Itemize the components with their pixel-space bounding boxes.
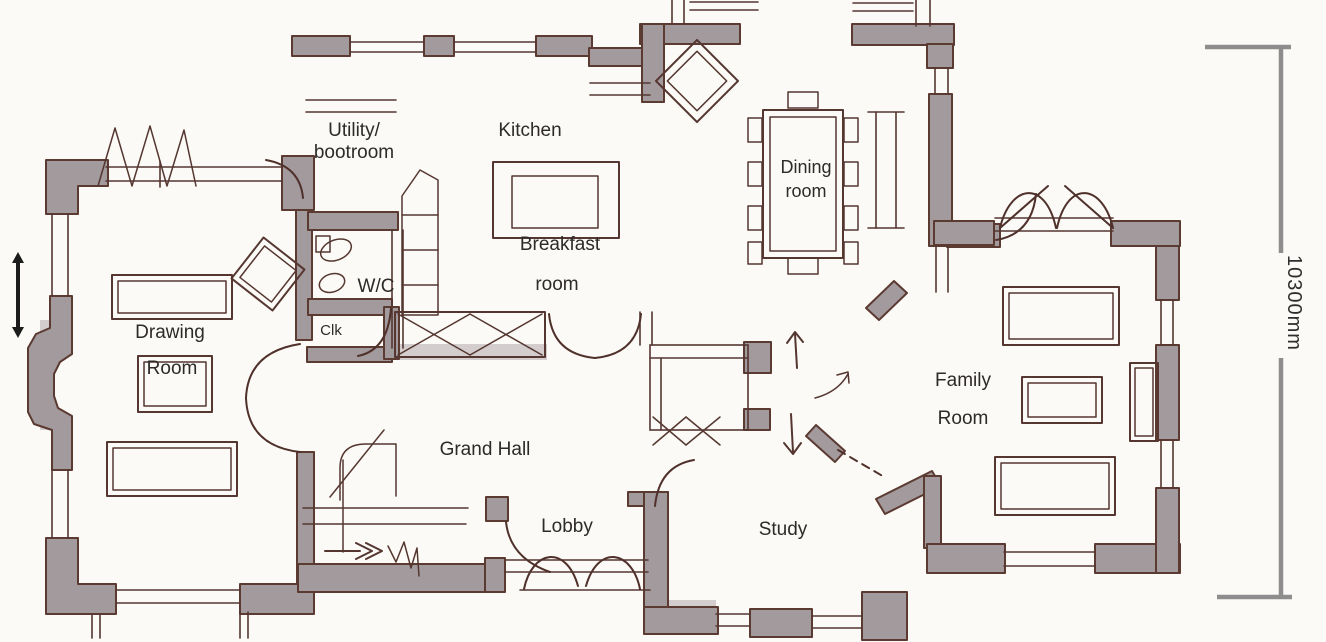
down-arrow (784, 414, 801, 454)
wall-segment (282, 156, 314, 210)
scale-tick (12, 252, 24, 338)
family-table (1022, 377, 1102, 423)
armchair (232, 238, 305, 311)
wall-segment (46, 538, 116, 614)
wall-segment (806, 425, 845, 462)
room-label-family-line1: Family (935, 370, 991, 391)
dimension-line: 10300mm (1205, 47, 1305, 597)
wall-segment (424, 36, 454, 56)
dimension-label: 10300mm (1283, 255, 1305, 351)
drawing-double-door-arc (246, 344, 300, 398)
drawing-double-door-arc (246, 398, 300, 452)
floor-plan-canvas: 10300mm Utility/ bootroom Kitchen Breakf… (0, 0, 1326, 642)
wall-segment (866, 281, 907, 320)
wall-segment (927, 44, 953, 68)
wall-segment (308, 212, 398, 230)
wall-segment (307, 347, 392, 362)
kitchen-unit (402, 170, 438, 315)
room-label-utility-line1: Utility/ (328, 120, 380, 141)
room-label-dining-line1: Dining (780, 157, 831, 177)
room-label-drawing-line2: Room (147, 358, 198, 379)
wall-segment (308, 299, 392, 315)
family-french-door-arc (1000, 193, 1056, 228)
wall-segment (292, 36, 350, 56)
curved-arrow (815, 372, 849, 398)
wall-segment (750, 609, 812, 637)
wall-segment (1156, 488, 1179, 573)
curtain-zigzag (98, 126, 196, 186)
toilet (316, 235, 355, 266)
wall-segment (927, 544, 1005, 573)
room-label-lobby: Lobby (541, 516, 593, 537)
breakfast-table (493, 162, 619, 238)
room-label-breakfast-line1: Breakfast (520, 234, 601, 255)
wall-segment (644, 492, 668, 610)
room-label-dining-line2: room (785, 181, 826, 201)
up-arrow (787, 332, 803, 368)
room-label-drawing-line1: Drawing (135, 322, 205, 343)
drawing-sofa (107, 442, 237, 496)
basin (317, 270, 347, 295)
fireplace-chimney (28, 296, 72, 470)
wall-segment (644, 607, 718, 634)
wall-segment (1156, 345, 1179, 440)
family-sofa-top (1003, 287, 1119, 345)
family-french-door-arc (1057, 193, 1113, 228)
wall-segment (862, 592, 907, 640)
kitchen-island (656, 40, 738, 122)
wall-segment (298, 564, 488, 592)
floor-plan-svg: 10300mm Utility/ bootroom Kitchen Breakf… (0, 0, 1326, 642)
family-side-unit (1130, 363, 1158, 441)
room-label-kitchen: Kitchen (498, 120, 561, 141)
hall-dashed-door (838, 450, 886, 478)
wall-segment (46, 160, 108, 214)
breakfast-door-arc (595, 314, 641, 358)
room-label-study: Study (759, 519, 808, 540)
lobby-entry-door-arc (586, 557, 640, 589)
floor-hatch (653, 417, 720, 445)
wall-segment (486, 497, 508, 521)
room-label-cloak: Clk (320, 322, 342, 339)
room-label-utility-line2: bootroom (314, 142, 394, 163)
wall-segment (642, 24, 664, 102)
furniture-layer (107, 40, 1158, 515)
lobby-entry-door-arc (524, 557, 578, 589)
room-label-grand-hall: Grand Hall (440, 439, 531, 460)
breakfast-door-arc (549, 314, 595, 358)
wall-segment (485, 558, 505, 592)
family-french-door-leaf (1065, 186, 1113, 228)
drawing-sideboard (112, 275, 232, 319)
wall-segment (852, 24, 954, 45)
wall-segment (934, 221, 994, 245)
family-french-door-leaf (1000, 186, 1048, 228)
room-label-wc: W/C (358, 276, 395, 297)
wall-segment (1111, 221, 1180, 246)
labels-layer: Utility/ bootroom Kitchen Breakfast room… (135, 120, 991, 540)
room-label-family-line2: Room (938, 408, 989, 429)
family-sofa-bottom (995, 457, 1115, 515)
stair-rail (340, 444, 396, 500)
wall-segment (924, 476, 941, 548)
wall-segment (536, 36, 592, 56)
room-label-breakfast-line2: room (535, 274, 578, 295)
